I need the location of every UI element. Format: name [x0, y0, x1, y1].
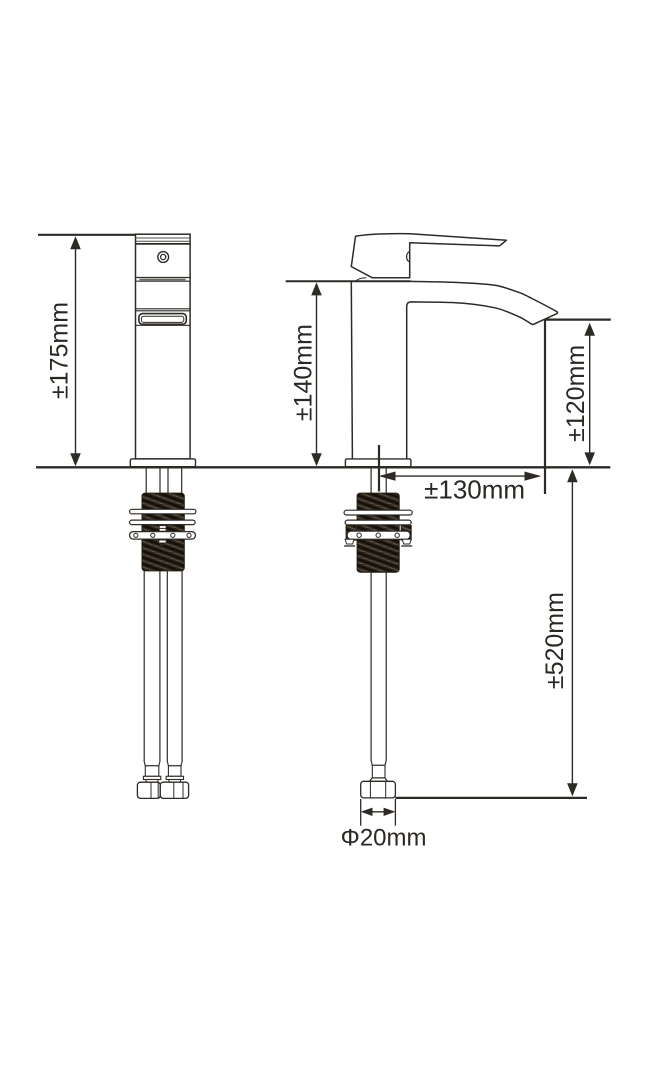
- svg-text:Φ20mm: Φ20mm: [341, 825, 427, 852]
- svg-text:±120mm: ±120mm: [562, 345, 590, 442]
- svg-text:±140mm: ±140mm: [289, 324, 317, 421]
- svg-text:±520mm: ±520mm: [541, 592, 569, 689]
- svg-text:±130mm: ±130mm: [424, 475, 525, 505]
- svg-text:±175mm: ±175mm: [45, 302, 73, 399]
